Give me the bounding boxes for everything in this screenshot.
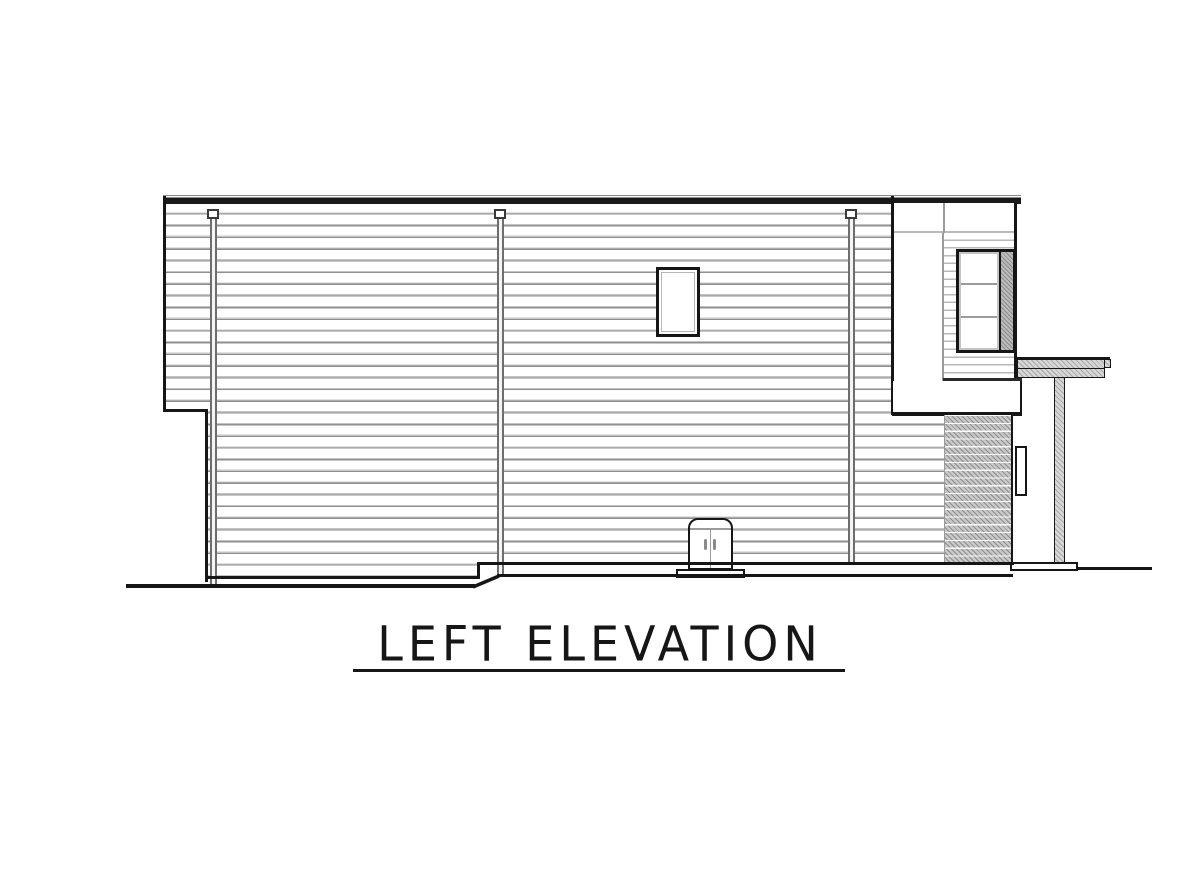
utility-door-handle-left: [704, 539, 707, 550]
grade-line-middle: [497, 574, 1013, 577]
bay-topband-divider: [943, 203, 945, 233]
upper-window: [656, 267, 700, 337]
bay-window-muntin-1: [961, 283, 997, 285]
porch-roof-fascia: [1017, 359, 1105, 378]
bay-window-muntin-2: [961, 316, 997, 318]
wall-base-step: [477, 563, 480, 579]
wall-base-line-left: [205, 576, 479, 579]
grade-line-left: [126, 584, 475, 588]
wall-notch-line: [163, 409, 208, 412]
bay-window-glazing: [959, 252, 999, 350]
porch-post: [1054, 378, 1065, 564]
downspout-right: [848, 219, 855, 564]
porch-slab: [1010, 562, 1078, 571]
main-wall-siding: [164, 203, 944, 577]
downspout-middle: [497, 219, 504, 575]
drawing-title-underline: [353, 669, 845, 672]
gutter-bracket-right: [845, 209, 857, 219]
downspout-left: [210, 219, 217, 584]
porch-roof-mid-line: [1018, 368, 1104, 369]
bay-window: [956, 249, 1016, 353]
grade-line-right: [1076, 567, 1152, 570]
lower-hatched-wall: [944, 415, 1013, 563]
wall-left-edge-lower: [205, 409, 208, 582]
gutter-bracket-middle: [494, 209, 506, 219]
bay-topband-bottom-line: [892, 231, 1015, 233]
upper-window-inner-frame: [661, 272, 695, 332]
bay-window-jamb-hatch: [1001, 252, 1013, 350]
wall-side-fixture: [1015, 446, 1027, 496]
wall-base-line-right: [477, 562, 1014, 565]
bay-lower-band: [893, 381, 1022, 412]
porch-roof-end-step: [1104, 359, 1111, 368]
wall-left-edge-upper: [163, 196, 166, 412]
gutter-bracket-left: [207, 209, 219, 219]
drawing-title: LEFT ELEVATION: [0, 616, 1200, 672]
utility-door-handle-right: [713, 539, 716, 550]
elevation-sheet: LEFT ELEVATION: [0, 0, 1200, 880]
